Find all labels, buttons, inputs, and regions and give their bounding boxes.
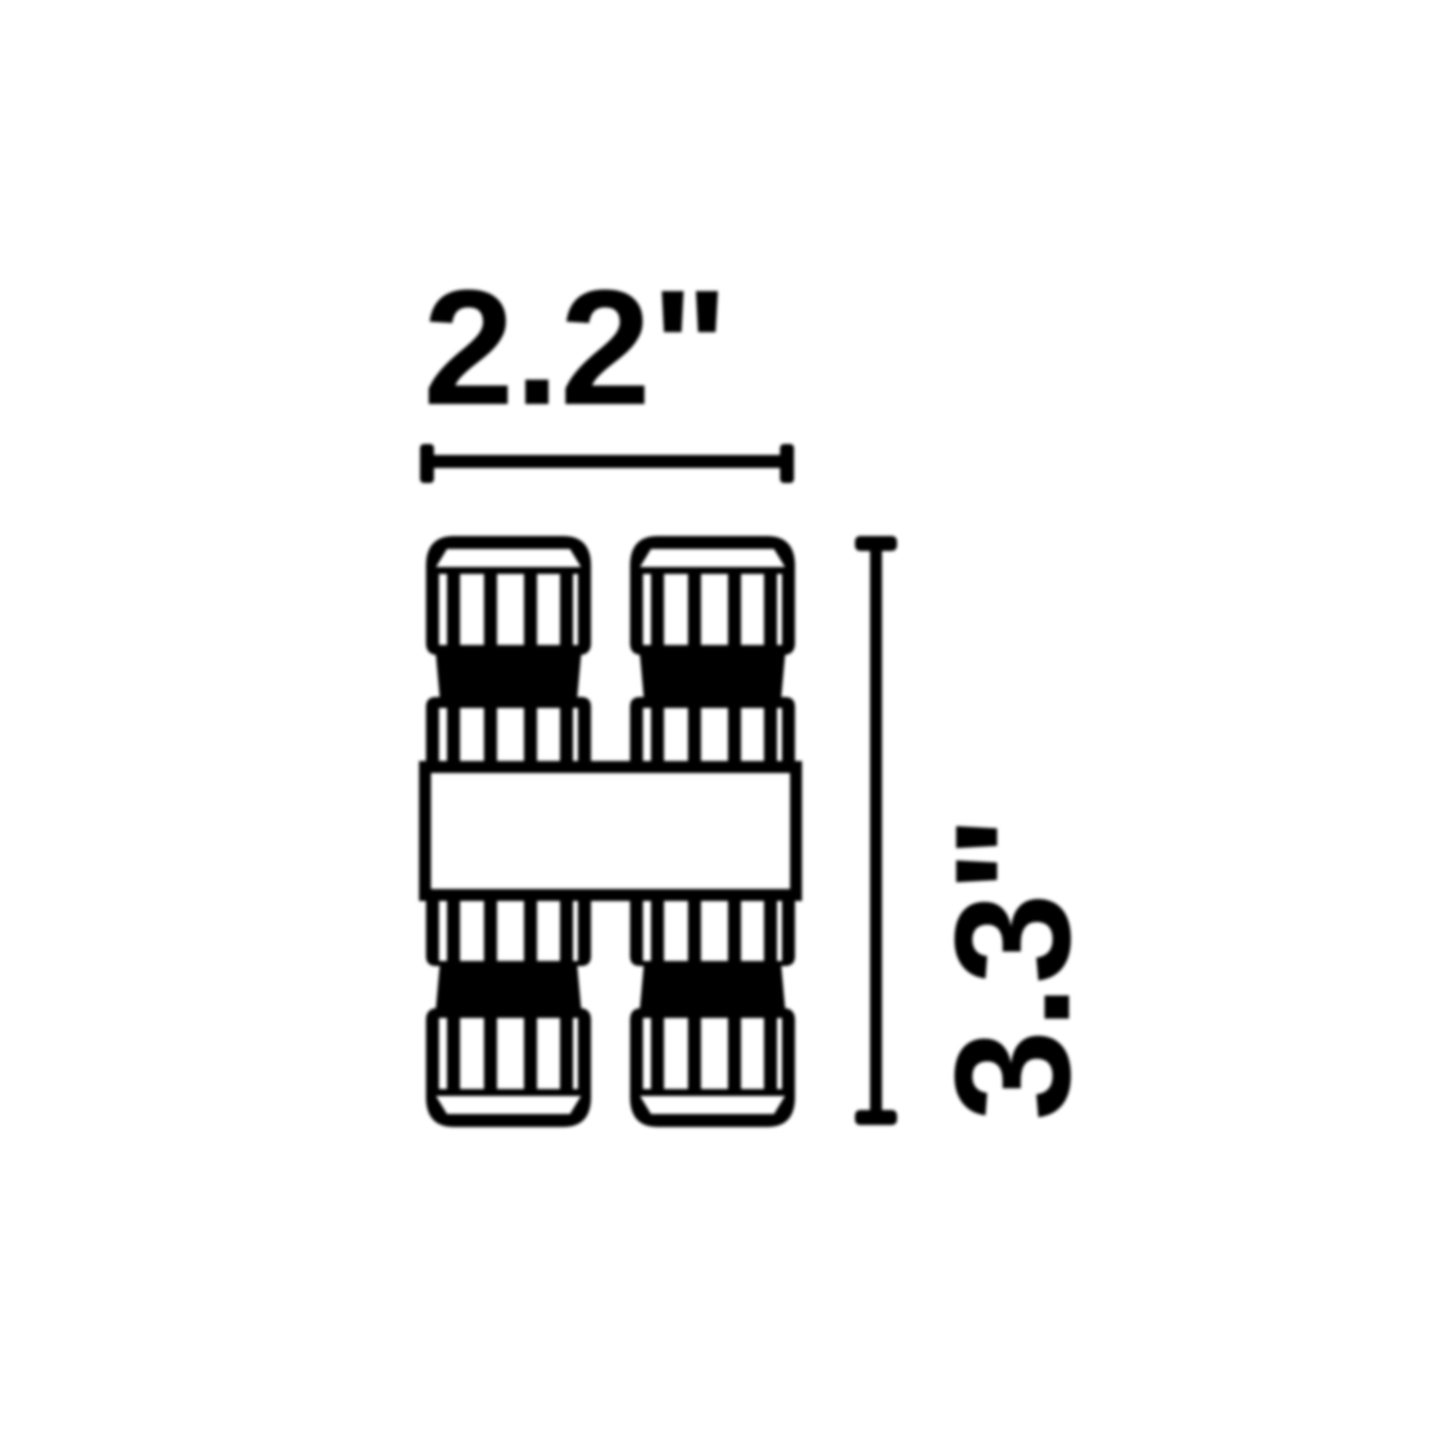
svg-text:2.2": 2.2" [423,256,729,439]
svg-text:3.3": 3.3" [921,815,1104,1121]
